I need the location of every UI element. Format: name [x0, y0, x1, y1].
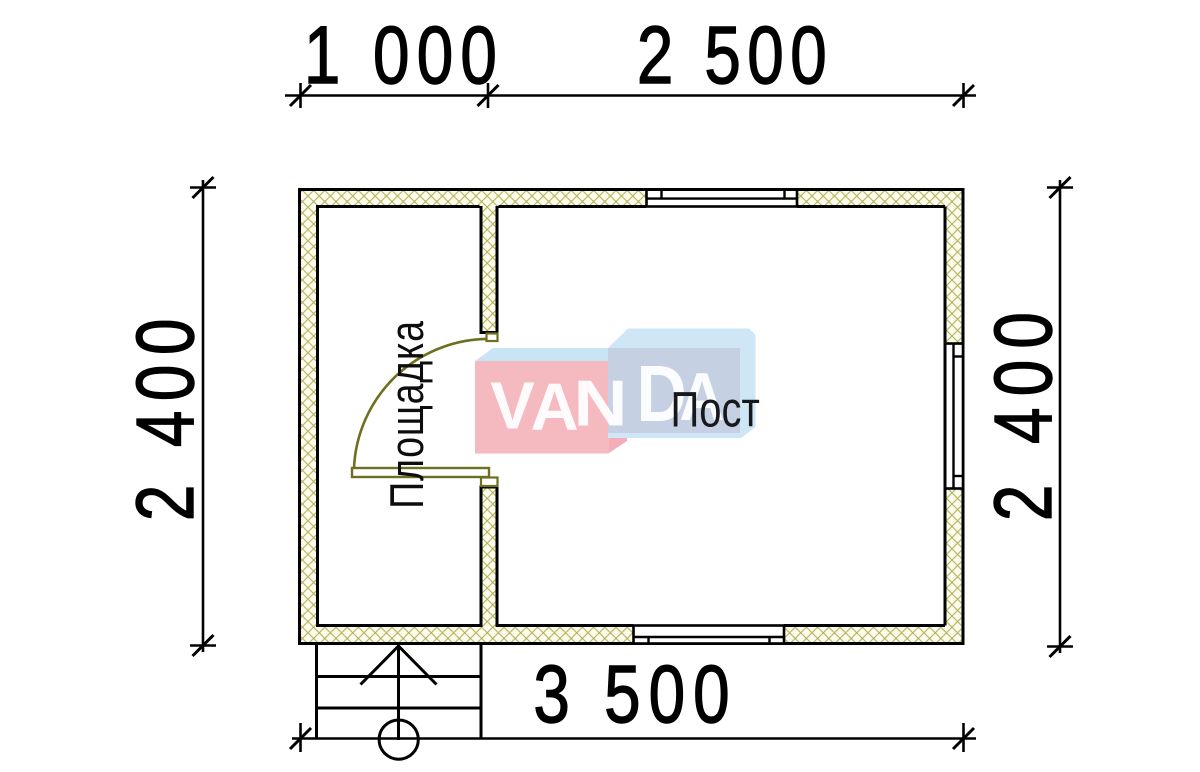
svg-text:2 500: 2 500 [637, 9, 833, 101]
svg-text:1 000: 1 000 [304, 9, 504, 101]
svg-text:Площадка: Площадка [381, 320, 434, 509]
svg-text:2 400: 2 400 [119, 309, 211, 521]
svg-text:N: N [574, 367, 628, 439]
svg-text:V: V [490, 369, 535, 444]
svg-text:2 400: 2 400 [977, 301, 1069, 521]
svg-text:Пост: Пост [671, 381, 760, 437]
svg-text:3 500: 3 500 [533, 648, 737, 740]
svg-text:A: A [530, 370, 578, 445]
